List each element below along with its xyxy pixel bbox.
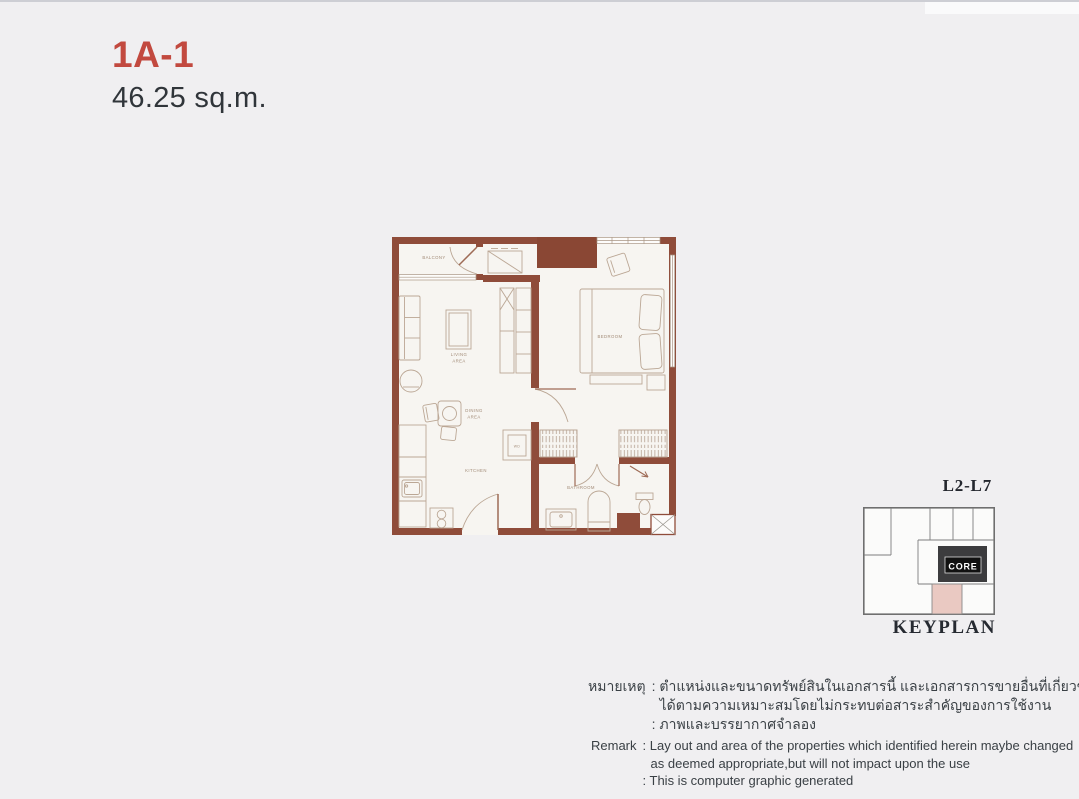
label-living-1: LIVING [451, 352, 468, 357]
remark-thai-line: ได้ตามความเหมาะสมโดยไม่กระทบต่อสาระสำคัญ… [652, 696, 1079, 715]
remark-thai: หมายเหตุ : ตำแหน่งและขนาดทรัพย์สินในเอกส… [588, 677, 1068, 734]
unit-area: 46.25 sq.m. [112, 82, 267, 115]
keyplan: L2-L7 CORE KEYPLAN [860, 476, 998, 644]
unit-code: 1A-1 [112, 36, 267, 73]
remark-english: Remark : Lay out and area of the propert… [591, 737, 1071, 790]
keyplan-core-label: CORE [948, 562, 977, 572]
remark-english-lines: : Lay out and area of the properties whi… [643, 737, 1074, 790]
remark-english-label: Remark [591, 737, 637, 790]
page-top-border [0, 0, 1079, 2]
keyplan-highlighted-unit [932, 584, 962, 614]
remark-english-line: : Lay out and area of the properties whi… [643, 737, 1074, 755]
unit-header: 1A-1 46.25 sq.m. [112, 36, 267, 115]
remark-thai-lines: : ตำแหน่งและขนาดทรัพย์สินในเอกสารนี้ และ… [652, 677, 1079, 734]
label-bedroom: BEDROOM [597, 334, 622, 339]
label-living-2: AREA [452, 359, 465, 364]
floor-plan: BALCONY LIVING AREA DINING AREA KITCHEN … [388, 225, 684, 541]
label-wd: WD [514, 445, 521, 449]
keyplan-floors: L2-L7 [943, 476, 992, 496]
remark-thai-line: : ตำแหน่งและขนาดทรัพย์สินในเอกสารนี้ และ… [652, 677, 1079, 696]
page-top-highlight [925, 2, 1079, 14]
label-kitchen: KITCHEN [465, 468, 487, 473]
label-dining-2: AREA [467, 415, 480, 420]
label-bathroom: BATHROOM [567, 485, 595, 490]
label-balcony: BALCONY [422, 255, 445, 260]
floor-plan-drawing: BALCONY LIVING AREA DINING AREA KITCHEN … [388, 225, 684, 541]
keyplan-drawing: CORE [863, 507, 995, 615]
remark-english-line: : This is computer graphic generated [643, 772, 1074, 790]
label-dining-1: DINING [465, 408, 483, 413]
keyplan-title: KEYPLAN [893, 617, 996, 639]
remark-thai-line: : ภาพและบรรยากาศจำลอง [652, 715, 1079, 734]
remark-thai-label: หมายเหตุ [588, 677, 646, 734]
remark-english-line: as deemed appropriate,but will not impac… [643, 755, 1074, 773]
